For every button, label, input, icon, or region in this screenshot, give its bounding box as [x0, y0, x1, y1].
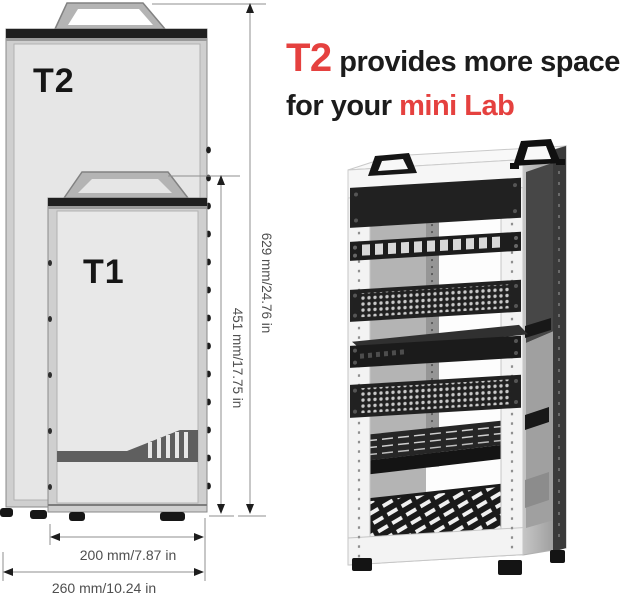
headline-line2: for your mini Lab — [286, 86, 620, 126]
rack-front-face — [348, 159, 528, 565]
cabinet-t1: T1 — [48, 172, 207, 521]
rack-handle-left-icon — [368, 153, 417, 176]
t2-foot — [0, 508, 13, 517]
size-comparison-diagram: T2 T1 — [0, 0, 310, 599]
dim-width-t1-label: 200 mm/7.87 in — [80, 547, 177, 563]
rack-foot — [352, 558, 372, 571]
cabinet-t2-label: T2 — [33, 62, 75, 100]
headline-line1-rest: provides more space — [332, 46, 620, 78]
t1-handle-cutout — [78, 179, 172, 193]
t1-top-edge — [48, 206, 207, 209]
product-image: T2 T1 — [0, 0, 640, 599]
headline: T2 provides more space for your mini Lab — [286, 34, 620, 126]
headline-line1: T2 provides more space — [286, 34, 620, 86]
t1-foot — [160, 512, 185, 521]
headline-line2-prefix: for your — [286, 90, 399, 122]
t2-foot — [30, 510, 47, 519]
rack-foot — [498, 560, 522, 575]
dim-width-t2-label: 260 mm/10.24 in — [52, 580, 156, 596]
t2-top-strip — [6, 29, 207, 38]
rack-foot — [550, 550, 565, 563]
t2-handle-cutout — [68, 9, 153, 25]
rack-right-side — [523, 146, 566, 555]
t1-top-strip — [48, 198, 207, 206]
cabinet-t1-label: T1 — [83, 253, 125, 291]
rack-3d-render — [335, 130, 640, 599]
t2-top-edge — [6, 38, 207, 41]
headline-t2: T2 — [286, 36, 332, 80]
dim-height-t2-label: 629 mm/24.76 in — [259, 233, 274, 334]
headline-minilab: mini Lab — [399, 90, 514, 122]
t1-foot — [69, 512, 85, 521]
dim-height-t1-label: 451 mm/17.75 in — [230, 308, 245, 409]
